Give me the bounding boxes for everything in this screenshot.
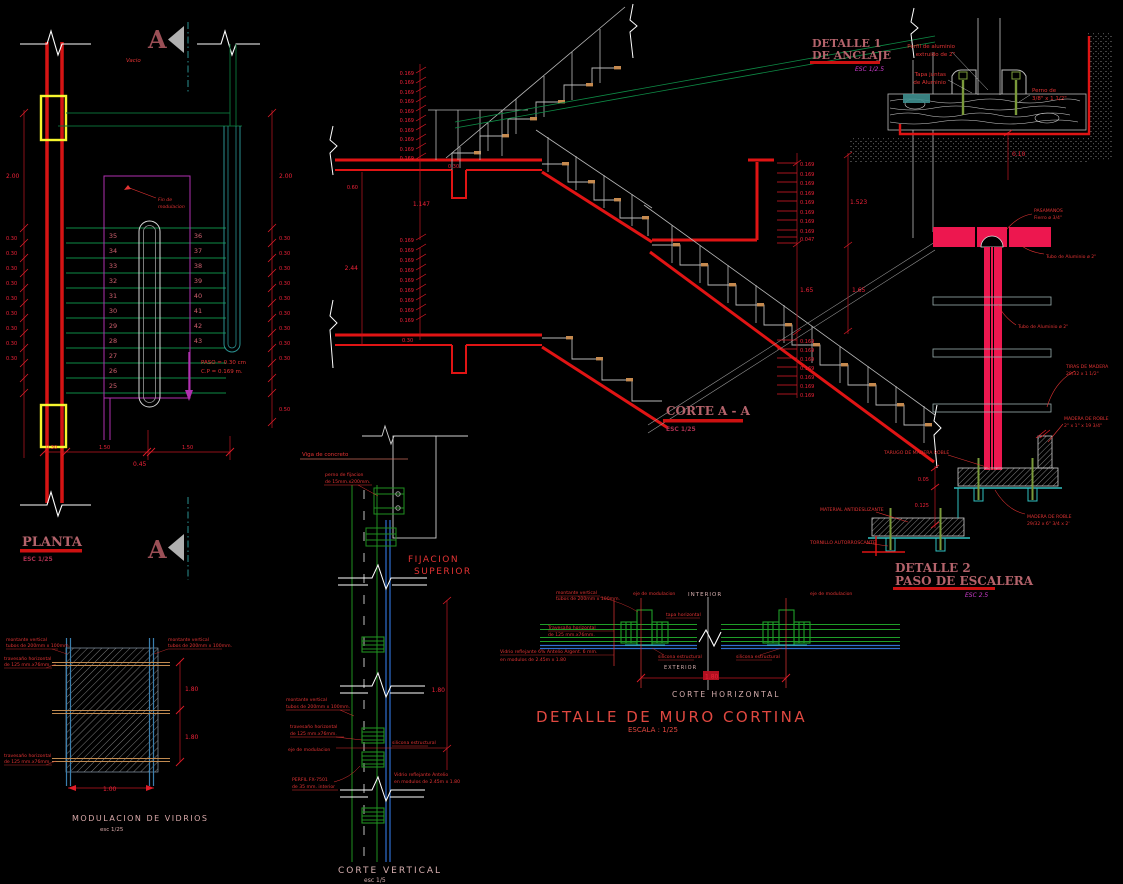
cv-perfil-l2: de 35 mm. interior (292, 784, 335, 790)
dim-label: 0.50 (279, 407, 290, 413)
dim-label: 0.169 (400, 109, 414, 115)
dim-label: 0.169 (800, 210, 814, 216)
dim-label: 0.169 (800, 357, 814, 363)
step-num: 40 (194, 292, 202, 300)
modulacion-drawing: 1.80 1.80 1.00 montante vertical tubos d… (4, 637, 232, 833)
dim-label: 0.169 (800, 384, 814, 390)
step-num: 32 (109, 277, 117, 285)
mc-montante-l1: montante vertical (556, 590, 597, 596)
planta-dims-bottom: 0.30 1.50 1.50 0.45 (40, 430, 234, 468)
dim-label: 0.30 (6, 236, 17, 242)
cv-labels: Viga de concreto perno de fijacion de 15… (286, 452, 472, 790)
paso-note-l2: C.P = 0.169 m. (201, 369, 243, 375)
void-label: Vacio (126, 58, 141, 64)
dim-label: 1.00 (103, 786, 117, 793)
gasket-block (903, 94, 930, 103)
dim-label: 0.169 (400, 90, 414, 96)
section-marker-bottom: A (147, 497, 188, 580)
step-num: 29 (109, 322, 117, 330)
dim-label: 0.169 (800, 393, 814, 399)
dim-label: 0.169 (400, 80, 414, 86)
dim-label: 0.169 (400, 71, 414, 77)
cad-canvas: 35 34 33 32 31 30 29 28 27 26 25 36 37 3… (0, 0, 1123, 884)
corte-nosings (474, 66, 932, 426)
perno-label-l1: Perno de (1032, 88, 1057, 94)
opening-note: Fin de modulacion (124, 185, 185, 210)
cv-title-block: CORTE VERTICAL esc 1/5 (338, 866, 442, 884)
madera2-l2: 29/32 x 6" 3/4 x 2' (1027, 521, 1070, 527)
dim-label: 2.00 (6, 173, 20, 180)
corte-title-block: CORTE A - A ESC 1/25 (663, 404, 751, 433)
dim-label: 0.05 (918, 477, 929, 483)
corte-scale: ESC 1/25 (666, 426, 696, 433)
detalle2-drawing: 0.05 0.125 TARUGO DE MADERA ROBLE MADERA… (809, 416, 1109, 599)
dim-label: 0.30 (279, 356, 290, 362)
dim-label: 0.169 (400, 248, 414, 254)
pasamano-label4-l2: 29/32 x 1 1/2" (1066, 371, 1099, 377)
dim-label: 0.30 (6, 356, 17, 362)
cv-scale: esc 1/5 (364, 877, 386, 884)
dim-label: 1.523 (850, 199, 867, 206)
dim-label: 1.65 (800, 287, 814, 294)
mc-vidrio-l1: Vidrio reflejante 6% Antelio Argent. 6 m… (500, 649, 597, 655)
dim-label: 0.30 (279, 236, 290, 242)
perno-fij-l2: de 15mm.x200mm. (325, 479, 370, 485)
cv-vidrio-l2: en modulos de 2.45m x 1.80 (394, 779, 460, 785)
cv-travesano-l2: de 125 mm.x76mm. (290, 731, 337, 737)
mc-mullion-left (621, 610, 668, 645)
mc-silicona-right: silicona estructural (736, 654, 780, 660)
dim-label: 2.44 (345, 265, 359, 272)
dim-label: 0.45 (133, 461, 147, 468)
corte-dims-left-upper: 0.169 0.169 0.169 0.169 0.169 0.169 0.16… (400, 64, 459, 240)
cv-eje-label: eje de modulacion (288, 747, 330, 753)
dim-label: 0.169 (800, 181, 814, 187)
mc-dim: 1.80 (637, 671, 790, 682)
slab-edge (862, 536, 905, 556)
step-num: 26 (109, 367, 117, 375)
planta-wall (47, 42, 62, 503)
title-underline (20, 549, 82, 553)
corte-title: CORTE A - A (666, 404, 751, 418)
detalle2-title-block: DETALLE 2 PASO DE ESCALERA ESC 2.5 (893, 561, 1034, 599)
dim-label: 0.10 (1012, 151, 1026, 158)
mod-montante2-l1: montante vertical (168, 637, 209, 643)
viga-label: Viga de concreto (302, 452, 349, 458)
dim-label: 1.80 (705, 674, 719, 681)
madera2-l1: MADERA DE ROBLE (1027, 514, 1072, 520)
dim-label: 0.30 (448, 164, 459, 170)
dim-label: 0.30 (279, 281, 290, 287)
dim-label: 0.30 (279, 251, 290, 257)
step-num: 34 (109, 247, 117, 255)
cv-montante-l1: montante vertical (286, 697, 327, 703)
mc-eje-right-label: eje de modulacion (810, 591, 852, 597)
lower-tread (872, 518, 964, 536)
step-num: 27 (109, 352, 117, 360)
mc-exterior-label: EXTERIOR (664, 665, 697, 671)
step-num: 33 (109, 262, 117, 270)
dim-label: 0.169 (800, 375, 814, 381)
pasamano-label4-l1: TIRAS DE MADERA (1065, 364, 1109, 370)
dim-label: 0.169 (400, 99, 414, 105)
step-num: 37 (194, 247, 202, 255)
opening-note-l2: modulacion (158, 204, 185, 210)
tarugo-label: TARUGO DE MADERA ROBLE (883, 450, 949, 456)
section-marker-top: A (147, 22, 188, 92)
fijacion-l1: FIJACION (408, 555, 459, 565)
perfil-label-l1: Perfil de aluminio (907, 44, 955, 50)
mc-travesano-l2: de 125 mm.x76mm. (548, 632, 595, 638)
mc-tapa-label: tapa horizontal (666, 612, 701, 618)
dim-label: 0.169 (800, 219, 814, 225)
concrete-hatch (1088, 32, 1112, 160)
corte-aa-drawing: 0.169 0.169 0.169 0.169 0.169 0.169 0.16… (330, 4, 941, 468)
step-num: 31 (109, 292, 117, 300)
dim-label: 0.169 (800, 339, 814, 345)
dim-label: 0.169 (400, 118, 414, 124)
dim-label: 0.125 (915, 503, 929, 509)
dim-label: 0.30 (6, 341, 17, 347)
opening-note-l1: Fin de (158, 197, 172, 203)
mc-interior-label: INTERIOR (688, 592, 722, 598)
section-letter: A (147, 535, 167, 564)
madera1-l1: MADERA DE ROBLE (1064, 416, 1109, 422)
corte-dims-right: 0.169 0.169 0.169 0.169 0.169 0.169 0.16… (777, 152, 867, 399)
mc-travesano-l1: Travesaño horizontal (547, 625, 596, 631)
concrete-beam (362, 426, 468, 538)
dim-label: 0.60 (347, 185, 358, 191)
planta-title: PLANTA (22, 535, 83, 550)
tapa-label-l2: de Aluminio (913, 80, 946, 86)
title-underline (893, 587, 995, 590)
perno-label-l2: 3/8" x 1 1/2" (1032, 96, 1067, 102)
mc-corte-h-title: CORTE HORIZONTAL (672, 690, 780, 699)
pasamano-drawing: PASAMANOS Fierro ø 3/4" Tubo de Aluminio… (933, 208, 1109, 470)
cv-title: CORTE VERTICAL (338, 866, 442, 876)
dim-label: 0.169 (400, 128, 414, 134)
top-anchor (366, 488, 404, 546)
madera1-l2: 2" x 1" x 19 3/4" (1064, 423, 1102, 429)
planta-dims-right: 2.00 0.30 0.30 0.30 0.30 0.30 0.30 0.30 … (268, 109, 293, 428)
planta-handrail-right (224, 126, 240, 352)
transom-boxes (362, 637, 384, 823)
title-underline (810, 61, 880, 64)
mc-mullion-right (763, 610, 810, 645)
step-num: 39 (194, 277, 202, 285)
perfil-label-l2: extruido de 2" (916, 52, 955, 58)
step-num: 35 (109, 232, 117, 240)
mod-scale: esc 1/25 (100, 827, 124, 833)
planta-dims-left: 2.00 0.30 0.30 0.30 0.30 0.30 0.30 0.30 … (6, 109, 28, 458)
dim-label: 0.169 (800, 162, 814, 168)
dim-label: 0.169 (800, 172, 814, 178)
dim-label: 0.169 (400, 156, 414, 162)
mod-title: MODULACION DE VIDRIOS (72, 814, 209, 823)
mc-vidrio-l2: en modulos de 2.45m x 1.80 (500, 657, 566, 663)
step-num: 30 (109, 307, 117, 315)
mc-title: DETALLE DE MURO CORTINA (536, 708, 807, 726)
dim-label: 2.00 (279, 173, 293, 180)
planta-handrail-center (139, 221, 160, 407)
dim-label: 0.30 (279, 266, 290, 272)
step-num: 41 (194, 307, 202, 315)
cv-travesano-l1: travesaño horizontal (290, 724, 337, 730)
dim-label: 0.169 (800, 191, 814, 197)
section-letter: A (147, 25, 167, 54)
cv-perfil-l1: PERFIL FX-7501 (292, 777, 328, 783)
dim-label: 0.30 (6, 251, 17, 257)
cv-vidrio-l1: Vidrio reflejante Antelio (394, 772, 448, 778)
mod-travesano-l2: de 125 mm.x76mm. (4, 662, 51, 668)
title-underline (663, 419, 743, 423)
mullion-lines (352, 485, 390, 862)
planta-direction-arrow (185, 352, 193, 401)
planta-drawing: 35 34 33 32 31 30 29 28 27 26 25 36 37 3… (6, 22, 293, 580)
dim-label: 0.30 (279, 311, 290, 317)
pasamano-label3: Tubo de Aluminio ø 2" (1017, 324, 1068, 330)
dim-label: 0.30 (6, 326, 17, 332)
dim-label: 0.169 (800, 348, 814, 354)
dim-label: 1.65 (852, 287, 866, 294)
step-num: 38 (194, 262, 202, 270)
mc-eje-left-label: eje de modulacion (633, 591, 675, 597)
dim-label: 0.30 (6, 296, 17, 302)
cv-silicona-label: silicona estructural (392, 740, 436, 746)
tapa-label-l1: Tapa juntas (914, 72, 946, 78)
dim-label: 0.169 (400, 298, 414, 304)
paso-note-l1: PASO = 0.30 cm (201, 360, 246, 366)
perno-fij-l1: perno de fijacion (325, 472, 364, 478)
dim-label: 0.30 (402, 338, 413, 344)
dim-label: 0.169 (400, 308, 414, 314)
break-symbols (338, 565, 427, 801)
dim-label: 0.047 (800, 237, 814, 243)
corte-dims-left-lower: 0.169 0.169 0.169 0.169 0.169 0.169 0.16… (345, 172, 426, 345)
step-num: 43 (194, 337, 202, 345)
antideslizante-label: MATERIAL ANTIDESLIZANTE (820, 507, 884, 513)
dim-label: 0.169 (400, 288, 414, 294)
step-num: 28 (109, 337, 117, 345)
pasamano-label1-l1: PASAMANOS (1034, 208, 1063, 214)
detalle2-title-l2: PASO DE ESCALERA (895, 574, 1034, 588)
dim-label: 0.30 (6, 311, 17, 317)
planta-title-block: PLANTA ESC 1/25 (20, 535, 83, 563)
dim-label: 1.147 (413, 201, 430, 208)
dim-label: 0.30 (279, 326, 290, 332)
pasamano-label1-l2: Fierro ø 3/4" (1034, 215, 1062, 221)
dim-label: 0.30 (279, 296, 290, 302)
dim-label: 0.169 (400, 147, 414, 153)
riser-board (1038, 436, 1052, 468)
section-arrow-icon (168, 26, 184, 53)
cad-drawing: 35 34 33 32 31 30 29 28 27 26 25 36 37 3… (0, 0, 1123, 884)
cv-montante-l2: tubos de 200mm x 100mm. (286, 704, 350, 710)
paso-note: PASO = 0.30 cm C.P = 0.169 m. (201, 360, 246, 375)
mod-travesano2-l2: de 125 mm.x76mm. (4, 759, 51, 765)
dim-label: 1.50 (99, 445, 110, 451)
section-arrow-icon (168, 534, 184, 561)
detalle1-title-l2: DE ANCLAJE (812, 49, 891, 62)
dim-label: 0.30 (6, 266, 17, 272)
mc-montante-l2: tubos de 200mm x 100mm. (556, 596, 620, 602)
detalle2-scale: ESC 2.5 (965, 592, 988, 599)
mod-travesano-l1: travesaño horizontal (4, 656, 51, 662)
dim-label: 1.80 (432, 687, 446, 694)
planta-landing-lines (58, 44, 242, 126)
detalle1-scale: ESC 1/2.5 (855, 66, 884, 73)
dim-label: 0.169 (400, 268, 414, 274)
dim-label: 0.169 (400, 238, 414, 244)
mod-title-block: MODULACION DE VIDRIOS esc 1/25 (72, 814, 209, 833)
mc-silicona-left: silicona estructural (658, 654, 702, 660)
corte-steps (452, 68, 932, 425)
dim-label: 1.80 (185, 734, 199, 741)
step-num: 36 (194, 232, 202, 240)
mod-montante-l2: tubos de 200mm x 100mm. (6, 643, 70, 649)
detalle1-drawing: DETALLE 1 DE ANCLAJE ESC 1/2.5 Perf (810, 18, 1112, 180)
mod-travesano2-l1: travesaño horizontal (4, 753, 51, 759)
dim-label: 0.169 (400, 318, 414, 324)
dim-label: 0.30 (279, 341, 290, 347)
tornillo-label: TORNILLO AUTORROSCANTE (809, 540, 876, 546)
step-num: 25 (109, 382, 117, 390)
concrete-hatch (850, 138, 1090, 162)
dim-label: 0.169 (400, 278, 414, 284)
dim-label: 0.169 (800, 366, 814, 372)
dim-label: 0.169 (800, 200, 814, 206)
dim-label: 0.30 (6, 281, 17, 287)
dim-label: 0.169 (400, 258, 414, 264)
dim-label: 0.169 (400, 137, 414, 143)
planta-scale: ESC 1/25 (23, 556, 53, 563)
dim-label: 1.80 (185, 686, 199, 693)
dim-label: 0.169 (800, 229, 814, 235)
mc-scale: ESCALA : 1/25 (628, 726, 678, 734)
fijacion-l2: SUPERIOR (414, 567, 472, 577)
detalle1-title-block: DETALLE 1 DE ANCLAJE ESC 1/2.5 (810, 37, 891, 73)
upper-tread (958, 468, 1058, 486)
muro-cortina-drawing: 1.80 montante vertical tubos de 200mm x … (500, 590, 900, 734)
mod-montante-l1: montante vertical (6, 637, 47, 643)
dim-label: 1.50 (182, 445, 193, 451)
dim-label: 0.30 (46, 445, 57, 451)
detalle2-title-l1: DETALLE 2 (895, 561, 971, 575)
corte-vertical-drawing: 1.80 Viga de concreto perno de fijacion … (286, 426, 472, 884)
step-num: 42 (194, 322, 202, 330)
mc-title-block: CORTE HORIZONTAL DETALLE DE MURO CORTINA… (536, 690, 807, 734)
mod-montante2-l2: tubos de 200mm x 100mm. (168, 643, 232, 649)
pasamano-label2: Tubo de Aluminio ø 2" (1045, 254, 1096, 260)
